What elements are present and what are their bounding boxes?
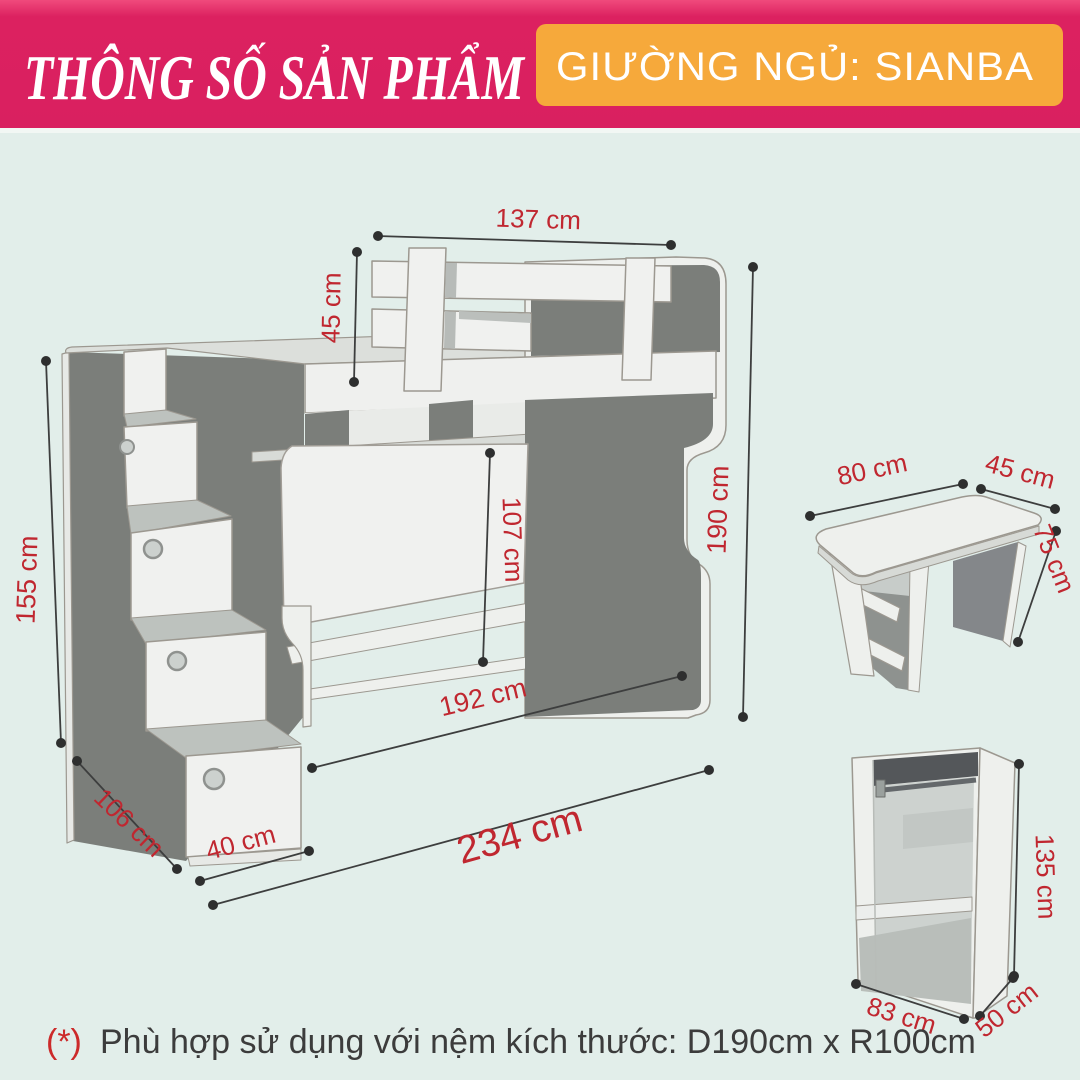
svg-text:137 cm: 137 cm xyxy=(495,203,581,236)
svg-text:THÔNG SỐ SẢN PHẨM: THÔNG SỐ SẢN PHẨM xyxy=(24,42,526,113)
svg-text:107 cm: 107 cm xyxy=(497,497,530,583)
svg-text:190 cm: 190 cm xyxy=(701,465,734,555)
svg-text:135 cm: 135 cm xyxy=(1030,834,1063,920)
svg-text:45 cm: 45 cm xyxy=(315,272,346,343)
svg-text:Phù hợp sử dụng với nệm kích t: Phù hợp sử dụng với nệm kích thước: D190… xyxy=(100,1023,976,1061)
svg-text:(*): (*) xyxy=(46,1023,82,1061)
svg-text:GIƯỜNG NGỦ: SIANBA: GIƯỜNG NGỦ: SIANBA xyxy=(556,43,1034,89)
svg-text:155 cm: 155 cm xyxy=(10,535,43,625)
